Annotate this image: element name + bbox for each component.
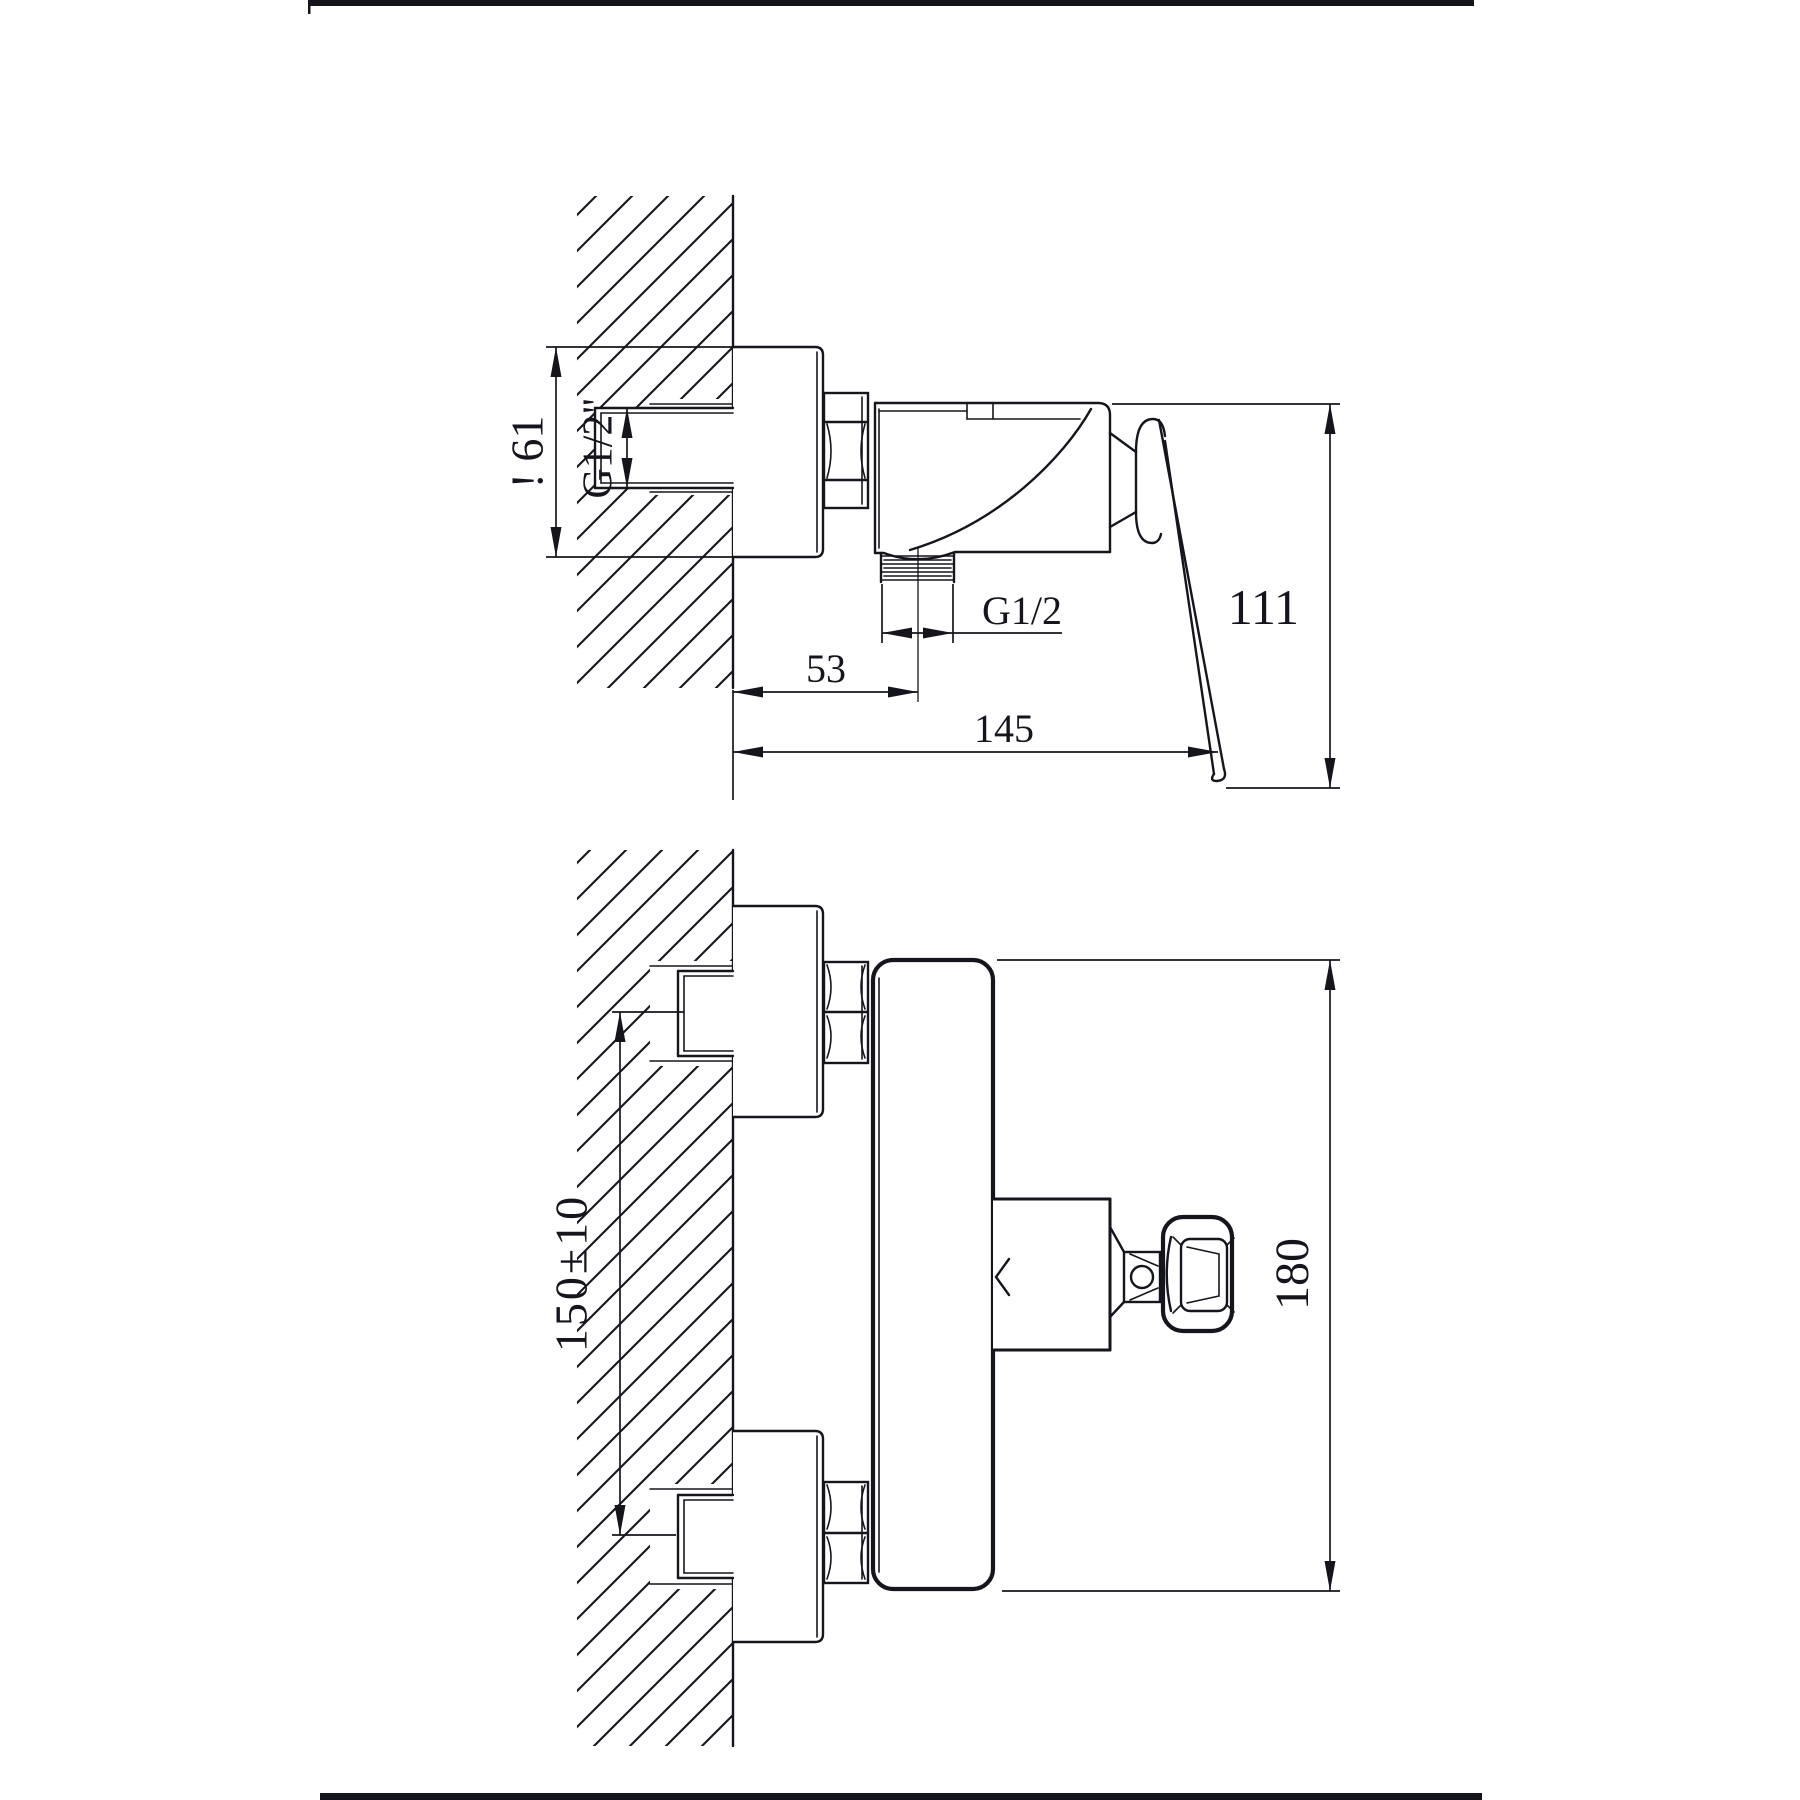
escutcheon-side-view xyxy=(733,347,823,557)
front-view: 150±10 180 xyxy=(546,850,1340,1746)
dimension-outlet-thread-label: G1/2 xyxy=(982,588,1062,633)
dimension-inlet-thread-label: G1/2" xyxy=(576,397,622,498)
page-border-bottom xyxy=(320,1793,1482,1800)
page-border-top xyxy=(308,0,1474,14)
dimension-inlet-spacing-label: 150±10 xyxy=(546,1194,597,1352)
handle-boss-front-view xyxy=(993,1199,1110,1350)
dimension-wall-to-outlet: 53 xyxy=(733,646,918,800)
handle-joint-front-view xyxy=(1110,1227,1160,1317)
dimension-body-height-label: 180 xyxy=(1266,1238,1319,1310)
side-view: ! 61 G1/2" G1/2 53 xyxy=(502,196,1340,800)
lever-handle-side-view xyxy=(1110,419,1225,781)
faucet-body-side-view xyxy=(875,403,1110,559)
hex-nut-side-view xyxy=(824,393,868,508)
dimension-total-depth-label: 145 xyxy=(974,706,1034,751)
technical-drawing: ! 61 G1/2" G1/2 53 xyxy=(0,0,1800,1800)
dimension-total-height: 111 xyxy=(1112,404,1340,788)
dimension-escutcheon-diameter-label: ! 61 xyxy=(502,416,553,489)
dimension-total-height-label: 111 xyxy=(1228,579,1299,635)
lever-knob-front-view xyxy=(1163,1217,1234,1331)
drawing-page: ! 61 G1/2" G1/2 53 xyxy=(0,0,1800,1800)
dimension-wall-to-outlet-label: 53 xyxy=(806,646,846,691)
faucet-body-front-view xyxy=(873,960,993,1589)
dimension-total-depth: 145 xyxy=(733,706,1218,758)
dimension-outlet-thread: G1/2 xyxy=(882,584,1062,643)
